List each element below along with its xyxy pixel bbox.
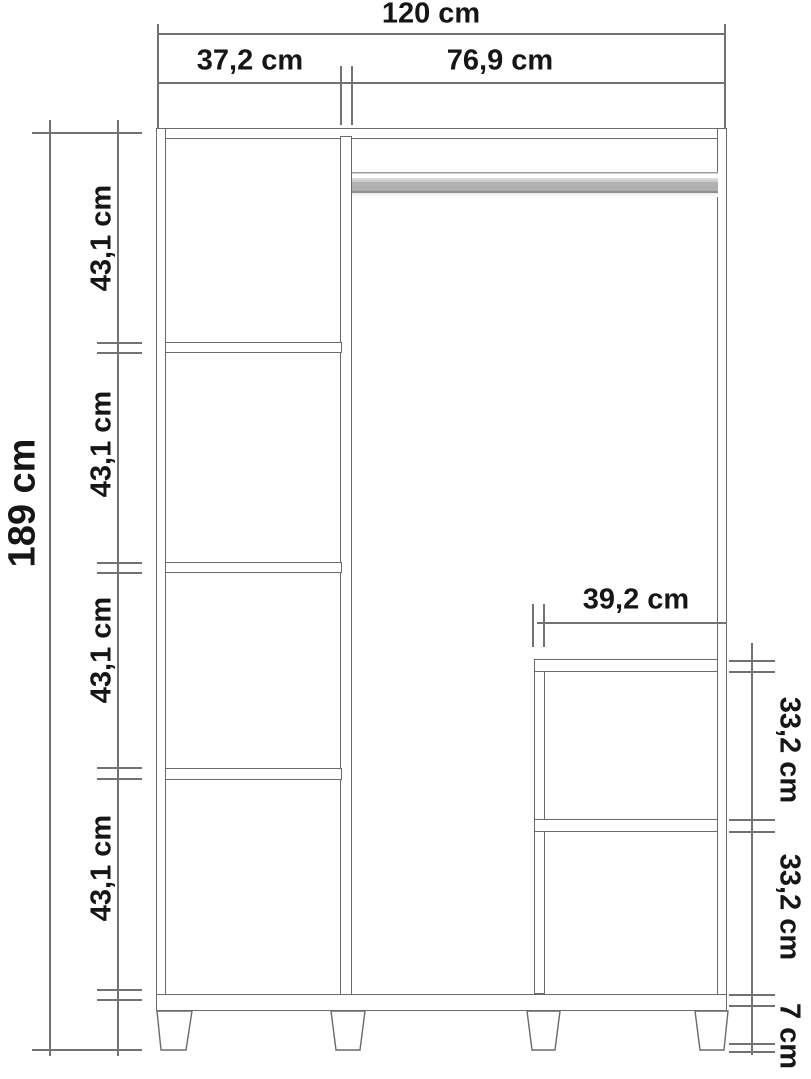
leg-3 (527, 1011, 560, 1050)
dim-label-total-height: 189 cm (2, 439, 45, 568)
dim-label-left-gap-3: 43,1 cm (86, 597, 119, 703)
shelf-tick-4b (97, 999, 142, 1001)
compartment-tick-a (532, 604, 534, 647)
shelf-1 (165, 342, 342, 353)
dim-label-compartment-width: 39,2 cm (583, 584, 689, 617)
shelf-tick-4a (97, 989, 142, 991)
right-tick-2b (729, 831, 775, 833)
leg-1 (157, 1011, 192, 1050)
dim-cap-top (32, 132, 142, 134)
leg-2 (331, 1011, 365, 1050)
dim-line-section-widths (158, 82, 725, 84)
dim-label-left-gap-1: 43,1 cm (86, 185, 119, 291)
dim-label-total-width: 120 cm (382, 0, 480, 31)
divider-tick-left (340, 66, 342, 125)
right-tick-3b (729, 1005, 775, 1007)
shelf-tick-3b (97, 778, 142, 780)
dim-cap-bottom (32, 1049, 142, 1051)
dim-label-compartment-gap-1: 33,2 cm (773, 697, 806, 803)
shelf-3 (165, 768, 342, 780)
compartment-shelf (534, 819, 718, 832)
shelf-tick-1a (97, 342, 142, 344)
right-tick-1a (729, 660, 775, 662)
dim-line-total-width (158, 33, 725, 35)
dim-line-total-height (49, 120, 51, 1056)
shelf-tick-2a (97, 562, 142, 564)
dim-label-right-section-width: 76,9 cm (447, 45, 553, 78)
leg-4 (695, 1011, 728, 1050)
hanging-rail (352, 172, 718, 197)
extension-line-top-left (157, 24, 159, 128)
compartment-tick-b (543, 604, 545, 647)
dim-label-left-gap-4: 43,1 cm (86, 815, 119, 921)
shelf-tick-2b (97, 572, 142, 574)
cabinet-right-wall (717, 128, 727, 1011)
cabinet-top-panel (156, 128, 727, 139)
legs-graphic (150, 1009, 735, 1055)
shelf-2 (165, 562, 342, 573)
dim-label-left-section-width: 37,2 cm (197, 45, 303, 78)
dim-label-left-gap-2: 43,1 cm (86, 391, 119, 497)
shelf-tick-1b (97, 352, 142, 354)
shelf-tick-3a (97, 767, 142, 769)
compartment-top-panel (534, 659, 718, 672)
wardrobe-dimension-diagram: 120 cm 37,2 cm 76,9 cm 189 cm 43,1 cm 43… (0, 0, 811, 1079)
right-tick-1b (729, 671, 775, 673)
right-tick-4b (729, 1051, 775, 1053)
dim-line-compartment-width (537, 622, 727, 624)
dim-label-leg-height: 7 cm (773, 1003, 806, 1069)
dim-label-compartment-gap-2: 33,2 cm (773, 854, 806, 960)
right-tick-3a (729, 994, 775, 996)
right-tick-4a (729, 1043, 775, 1045)
extension-line-top-right (724, 24, 726, 128)
right-tick-2a (729, 819, 775, 821)
divider-tick-right (351, 66, 353, 125)
